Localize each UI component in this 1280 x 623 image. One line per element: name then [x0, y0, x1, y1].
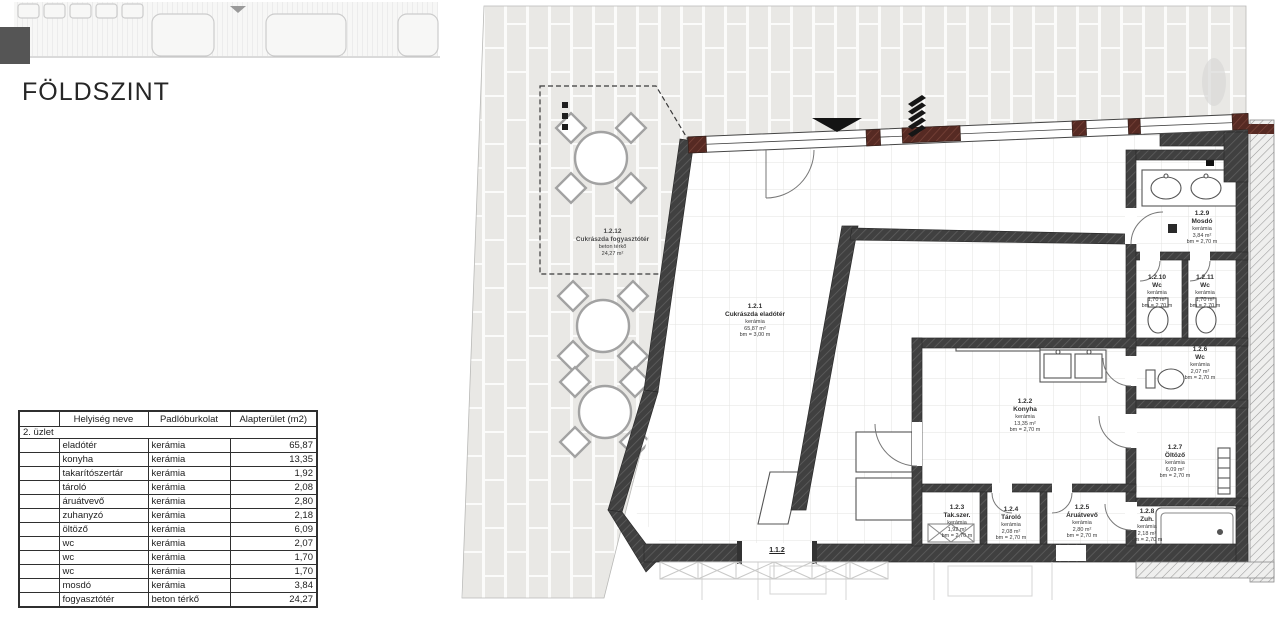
table-header-flooring: Padlóburkolat	[148, 411, 230, 427]
neighbor-wall	[1250, 120, 1274, 582]
room-label-1-2-1: 1.2.1 Cukrászda eladótér kerámia 65,87 m…	[695, 303, 815, 339]
room-label-1-2-3: 1.2.3 Tak.szer. kerámia 1,92 m² bm = 2,7…	[928, 504, 986, 540]
room-label-1-2-9: 1.2.9 Mosdó kerámia 3,84 m² bm = 2,70 m	[1166, 210, 1238, 246]
site-plan-strip	[0, 2, 440, 64]
table-group-row: 2. üzlet	[19, 427, 317, 439]
table-row: konyhakerámia13,35	[19, 453, 317, 467]
table-row: eladótérkerámia65,87	[19, 439, 317, 453]
room-label-1-2-2: 1.2.2 Konyha kerámia 13,35 m² bm = 2,70 …	[970, 398, 1080, 434]
room-label-1-2-10: 1.2.10 Wc kerámia 1,70 m² bm = 2,70 m	[1134, 274, 1180, 310]
table-row: áruátvevőkerámia2,80	[19, 495, 317, 509]
room-label-1-2-12: 1.2.12 Cukrászda fogyasztótér beton térk…	[555, 228, 670, 257]
lower-unit-faint	[660, 562, 1052, 600]
room-label-1-2-11: 1.2.11 Wc kerámia 1,70 m² bm = 2,70 m	[1182, 274, 1228, 310]
room-label-1-2-5: 1.2.5 Áruátvevő kerámia 2,80 m² bm = 2,7…	[1044, 504, 1120, 540]
site-dark-block	[0, 27, 30, 64]
radiator-icon	[1218, 448, 1230, 494]
area-table: Helyiség neve Padlóburkolat Alapterület …	[18, 410, 318, 608]
table-header-area: Alapterület (m2)	[230, 411, 317, 427]
floor-plan-sheet: FÖLDSZINT 1.2.1 Cukrászda eladótér kerám…	[0, 0, 1280, 623]
room-label-1-2-8: 1.2.8 Zuh. kerámia 2,18 m² bm = 2,70 m	[1126, 508, 1168, 544]
room-label-1-2-6: 1.2.6 Wc kerámia 2,07 m² bm = 2,70 m	[1168, 346, 1232, 382]
neighbor-wall	[1136, 562, 1274, 578]
bollard-icons	[562, 102, 568, 130]
table-row: takarítószertárkerámia1,92	[19, 467, 317, 481]
page-title: FÖLDSZINT	[22, 78, 170, 107]
table-row: zuhanyzókerámia2,18	[19, 509, 317, 523]
room-label-1-2-7: 1.2.7 Öltöző kerámia 6,09 m² bm = 2,70 m	[1142, 444, 1208, 480]
table-row: öltözőkerámia6,09	[19, 523, 317, 537]
tree-icon	[1202, 58, 1226, 106]
table-row: wckerámia2,07	[19, 537, 317, 551]
table-header-room-name: Helyiség neve	[59, 411, 148, 427]
table-row: wckerámia1,70	[19, 551, 317, 565]
table-row: fogyasztótérbeton térkő24,27	[19, 593, 317, 608]
table-header-blank	[19, 411, 59, 427]
adjacent-unit-label: 1.1.2	[752, 547, 802, 554]
table-row: tárolókerámia2,08	[19, 481, 317, 495]
table-row: wckerámia1,70	[19, 565, 317, 579]
brick-pier	[1248, 124, 1274, 134]
table-row: mosdókerámia3,84	[19, 579, 317, 593]
room-label-1-2-4: 1.2.4 Tároló kerámia 2,08 m² bm = 2,70 m	[984, 506, 1038, 542]
